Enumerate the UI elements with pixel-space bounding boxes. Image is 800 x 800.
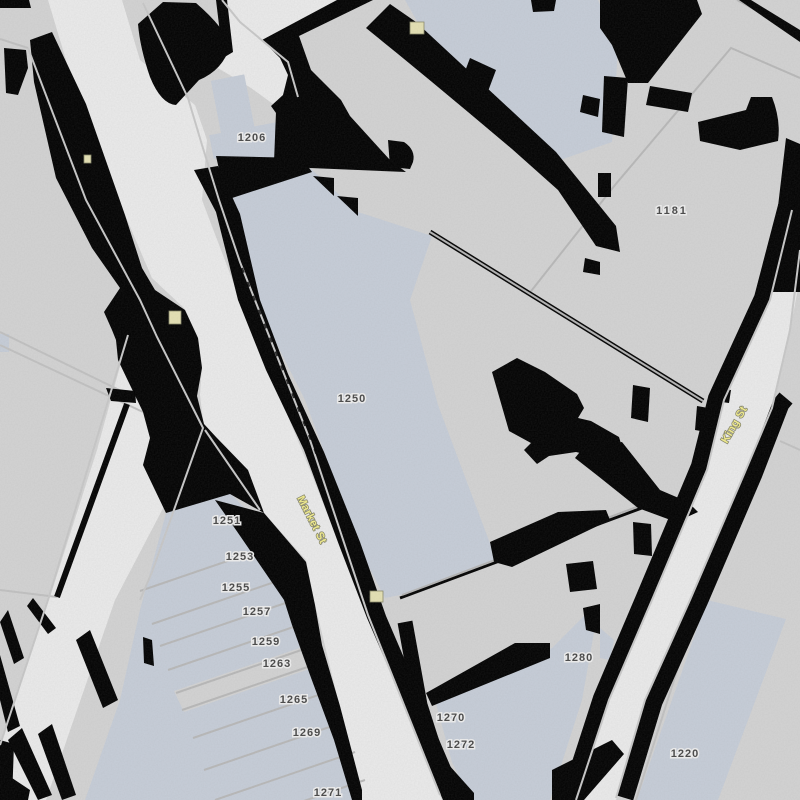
svg-text:1270: 1270 bbox=[437, 712, 465, 724]
svg-text:1259: 1259 bbox=[252, 636, 280, 648]
svg-text:1265: 1265 bbox=[280, 694, 308, 706]
svg-text:1269: 1269 bbox=[293, 727, 321, 739]
svg-text:1255: 1255 bbox=[222, 582, 250, 594]
svg-text:1263: 1263 bbox=[263, 658, 291, 670]
svg-text:1272: 1272 bbox=[447, 739, 475, 751]
svg-text:1253: 1253 bbox=[226, 551, 254, 563]
svg-text:1257: 1257 bbox=[243, 606, 271, 618]
svg-text:1220: 1220 bbox=[671, 748, 699, 760]
svg-text:1271: 1271 bbox=[314, 787, 342, 799]
svg-text:1251: 1251 bbox=[213, 515, 241, 527]
svg-text:1181: 1181 bbox=[656, 205, 688, 217]
svg-text:1206: 1206 bbox=[238, 132, 266, 144]
svg-text:1250: 1250 bbox=[338, 393, 366, 405]
svg-text:1280: 1280 bbox=[565, 652, 593, 664]
